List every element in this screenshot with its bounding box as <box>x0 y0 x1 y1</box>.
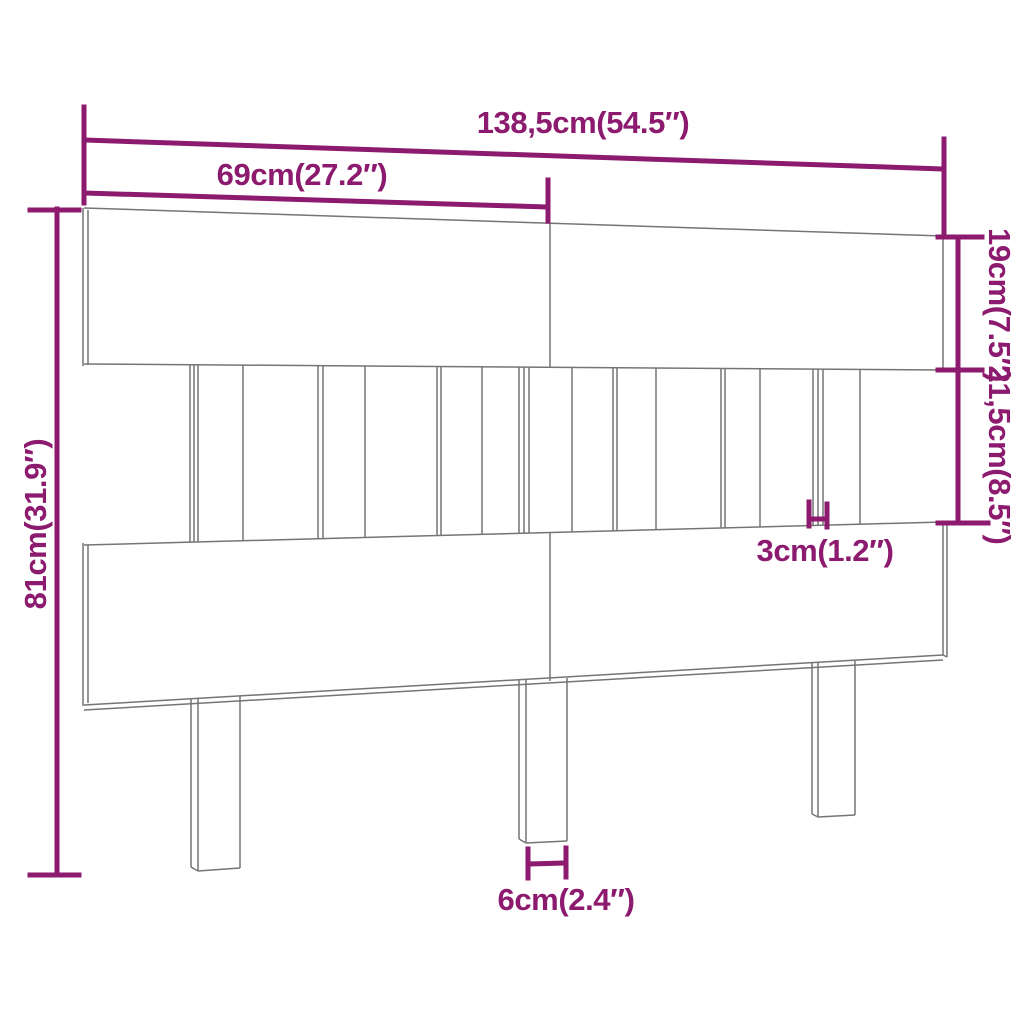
headboard-outline-line <box>526 841 567 843</box>
headboard-outline-line <box>84 655 943 705</box>
headboard-outline-line <box>519 839 526 843</box>
dimension-lines <box>30 107 988 878</box>
headboard-drawing <box>0 0 1024 1024</box>
headboard-dimension-diagram: 138,5cm(54.5″) 69cm(27.2″) 19cm(7.5″) 21… <box>0 0 1024 1024</box>
dimension-label-half-width: 69cm(27.2″) <box>217 157 388 193</box>
headboard-outline-line <box>198 868 240 871</box>
headboard-outline-line <box>812 814 818 817</box>
dimension-label-top-panel-height: 19cm(7.5″) <box>981 228 1017 382</box>
headboard-outline-line <box>84 208 943 236</box>
dimension-label-leg-width: 6cm(2.4″) <box>497 882 634 918</box>
dimension-label-overall-width: 138,5cm(54.5″) <box>477 105 690 141</box>
dimension-label-overall-height: 81cm(31.9″) <box>18 439 54 610</box>
dimension-label-slat-section-height: 21,5cm(8.5″) <box>981 366 1017 545</box>
headboard-outline-line <box>84 364 943 370</box>
headboard-outline-line <box>84 660 943 710</box>
headboard-outline-line <box>191 867 198 871</box>
headboard-outline-line <box>818 815 855 817</box>
dimension-label-slat-gap: 3cm(1.2″) <box>756 533 893 569</box>
dimension-line <box>528 863 566 864</box>
dimension-line <box>84 140 944 169</box>
dimension-line <box>84 193 548 207</box>
